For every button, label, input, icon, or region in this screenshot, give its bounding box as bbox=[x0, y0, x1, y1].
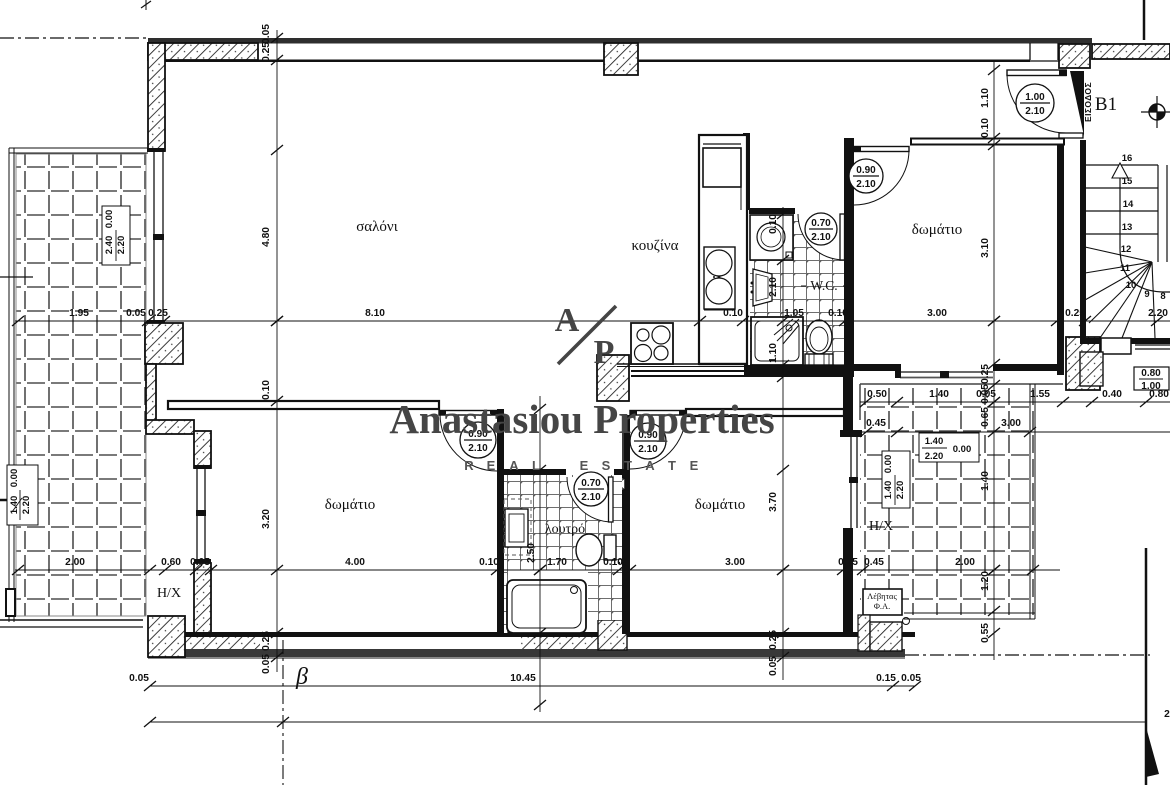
svg-text:9: 9 bbox=[1144, 289, 1149, 300]
svg-text:0.45: 0.45 bbox=[866, 418, 886, 429]
svg-text:3.00: 3.00 bbox=[1001, 418, 1021, 429]
svg-text:L: L bbox=[532, 458, 540, 473]
svg-text:10.45: 10.45 bbox=[510, 673, 536, 684]
svg-text:H/X: H/X bbox=[869, 519, 893, 534]
svg-text:0.25: 0.25 bbox=[980, 364, 991, 384]
svg-text:0.90: 0.90 bbox=[856, 165, 876, 176]
svg-text:δωμάτιο: δωμάτιο bbox=[325, 497, 375, 513]
svg-text:0.10: 0.10 bbox=[980, 118, 991, 138]
svg-text:1.40: 1.40 bbox=[925, 436, 944, 447]
svg-text:0.05: 0.05 bbox=[129, 673, 149, 684]
svg-text:0.00: 0.00 bbox=[104, 210, 115, 229]
svg-text:2.20: 2.20 bbox=[1148, 308, 1168, 319]
svg-text:δωμάτιο: δωμάτιο bbox=[695, 497, 745, 513]
svg-text:0.40: 0.40 bbox=[1102, 389, 1122, 400]
svg-text:A: A bbox=[555, 302, 580, 339]
svg-text:1.95: 1.95 bbox=[69, 308, 89, 319]
svg-text:0.05: 0.05 bbox=[190, 557, 210, 568]
svg-text:E: E bbox=[690, 458, 699, 473]
svg-text:4.80: 4.80 bbox=[261, 227, 272, 247]
svg-text:E: E bbox=[580, 458, 589, 473]
svg-text:1.40: 1.40 bbox=[9, 496, 20, 515]
svg-text:κουζίνα: κουζίνα bbox=[631, 238, 678, 254]
svg-text:0.80: 0.80 bbox=[1149, 389, 1169, 400]
svg-text:1.40: 1.40 bbox=[883, 481, 894, 500]
svg-text:2.50: 2.50 bbox=[526, 543, 537, 563]
svg-text:R: R bbox=[464, 458, 474, 473]
svg-text:3.70: 3.70 bbox=[768, 492, 779, 512]
svg-text:8.10: 8.10 bbox=[365, 308, 385, 319]
svg-text:Λέβητας: Λέβητας bbox=[867, 591, 897, 601]
svg-text:A: A bbox=[509, 458, 519, 473]
svg-text:λουτρό: λουτρό bbox=[545, 522, 585, 537]
svg-text:0.25: 0.25 bbox=[148, 308, 168, 319]
svg-text:1.70: 1.70 bbox=[547, 557, 567, 568]
svg-text:1.10: 1.10 bbox=[980, 88, 991, 108]
svg-text:1.20: 1.20 bbox=[980, 571, 991, 591]
svg-text:E: E bbox=[487, 458, 496, 473]
svg-text:0.00: 0.00 bbox=[953, 444, 972, 455]
svg-text:0.05: 0.05 bbox=[126, 308, 146, 319]
svg-text:Φ.Α.: Φ.Α. bbox=[874, 601, 891, 611]
svg-text:2.20: 2.20 bbox=[925, 451, 944, 462]
svg-text:2.00: 2.00 bbox=[65, 557, 85, 568]
svg-text:2.10: 2.10 bbox=[811, 232, 831, 243]
svg-text:0.05: 0.05 bbox=[261, 654, 272, 674]
svg-text:3.20: 3.20 bbox=[261, 509, 272, 529]
svg-text:2.20: 2.20 bbox=[116, 236, 127, 255]
svg-text:10: 10 bbox=[1126, 280, 1137, 291]
svg-text:2.00: 2.00 bbox=[955, 557, 975, 568]
svg-text:3.10: 3.10 bbox=[980, 238, 991, 258]
svg-text:σαλόνι: σαλόνι bbox=[356, 219, 398, 235]
svg-text:P: P bbox=[594, 334, 615, 371]
svg-text:3.00: 3.00 bbox=[927, 308, 947, 319]
svg-text:0.50: 0.50 bbox=[867, 389, 887, 400]
svg-text:14: 14 bbox=[1123, 199, 1134, 210]
svg-text:2.10: 2.10 bbox=[581, 492, 601, 503]
svg-text:0.00: 0.00 bbox=[9, 469, 20, 488]
svg-text:12: 12 bbox=[1121, 244, 1132, 255]
svg-text:ΕΙΣΟΔΟΣ: ΕΙΣΟΔΟΣ bbox=[1083, 82, 1093, 122]
svg-text:H/X: H/X bbox=[157, 586, 181, 601]
svg-text:2.10: 2.10 bbox=[1025, 106, 1045, 117]
svg-text:0.70: 0.70 bbox=[581, 478, 601, 489]
svg-text:0.10: 0.10 bbox=[723, 308, 743, 319]
svg-text:2.10: 2.10 bbox=[468, 443, 488, 454]
svg-text:4.00: 4.00 bbox=[345, 557, 365, 568]
svg-text:11: 11 bbox=[1120, 263, 1131, 274]
svg-text:0.55: 0.55 bbox=[980, 623, 991, 643]
svg-text:15: 15 bbox=[1122, 176, 1133, 187]
svg-text:0.70: 0.70 bbox=[811, 218, 831, 229]
svg-text:B1: B1 bbox=[1095, 94, 1117, 115]
svg-text:2.10: 2.10 bbox=[856, 179, 876, 190]
svg-text:0.25: 0.25 bbox=[838, 557, 858, 568]
svg-text:T: T bbox=[624, 458, 632, 473]
svg-text:0.05: 0.05 bbox=[901, 673, 921, 684]
svg-text:0.45: 0.45 bbox=[864, 557, 884, 568]
svg-text:1.00: 1.00 bbox=[1025, 92, 1045, 103]
svg-text:16: 16 bbox=[1122, 153, 1133, 164]
svg-text:0.80: 0.80 bbox=[1141, 368, 1161, 379]
svg-text:0.65: 0.65 bbox=[980, 407, 991, 427]
svg-text:1.40: 1.40 bbox=[980, 471, 991, 491]
svg-text:W.C.: W.C. bbox=[810, 278, 837, 293]
svg-text:2.40: 2.40 bbox=[104, 236, 115, 255]
svg-text:0.05: 0.05 bbox=[261, 24, 272, 44]
svg-text:1.55: 1.55 bbox=[1030, 389, 1050, 400]
svg-text:2.10: 2.10 bbox=[638, 444, 658, 455]
svg-text:0.10: 0.10 bbox=[261, 380, 272, 400]
svg-text:δωμάτιο: δωμάτιο bbox=[912, 222, 962, 238]
svg-text:0.25: 0.25 bbox=[768, 630, 779, 650]
svg-text:2.20: 2.20 bbox=[895, 481, 906, 500]
svg-text:0.00: 0.00 bbox=[883, 455, 894, 474]
svg-text:0.60: 0.60 bbox=[161, 557, 181, 568]
svg-text:0.10: 0.10 bbox=[603, 557, 623, 568]
svg-text:0.25: 0.25 bbox=[1065, 308, 1085, 319]
svg-text:0.05: 0.05 bbox=[976, 389, 996, 400]
svg-text:0.15: 0.15 bbox=[876, 673, 896, 684]
svg-text:0.25: 0.25 bbox=[261, 631, 272, 651]
svg-text:A: A bbox=[645, 458, 655, 473]
svg-text:13: 13 bbox=[1122, 222, 1133, 233]
svg-text:T: T bbox=[668, 458, 676, 473]
svg-text:Anastasiou Properties: Anastasiou Properties bbox=[389, 396, 774, 442]
svg-text:0.10: 0.10 bbox=[768, 214, 779, 234]
svg-text:1.10: 1.10 bbox=[768, 343, 779, 363]
svg-text:0.10: 0.10 bbox=[479, 557, 499, 568]
svg-text:3.00: 3.00 bbox=[725, 557, 745, 568]
svg-text:2.20: 2.20 bbox=[21, 496, 32, 515]
svg-text:2: 2 bbox=[1164, 709, 1170, 720]
svg-text:8: 8 bbox=[1160, 291, 1165, 302]
svg-text:1.40: 1.40 bbox=[929, 389, 949, 400]
svg-text:0.10: 0.10 bbox=[828, 308, 848, 319]
svg-text:S: S bbox=[602, 458, 611, 473]
svg-text:0.05: 0.05 bbox=[768, 656, 779, 676]
svg-text:2.10: 2.10 bbox=[768, 277, 779, 297]
